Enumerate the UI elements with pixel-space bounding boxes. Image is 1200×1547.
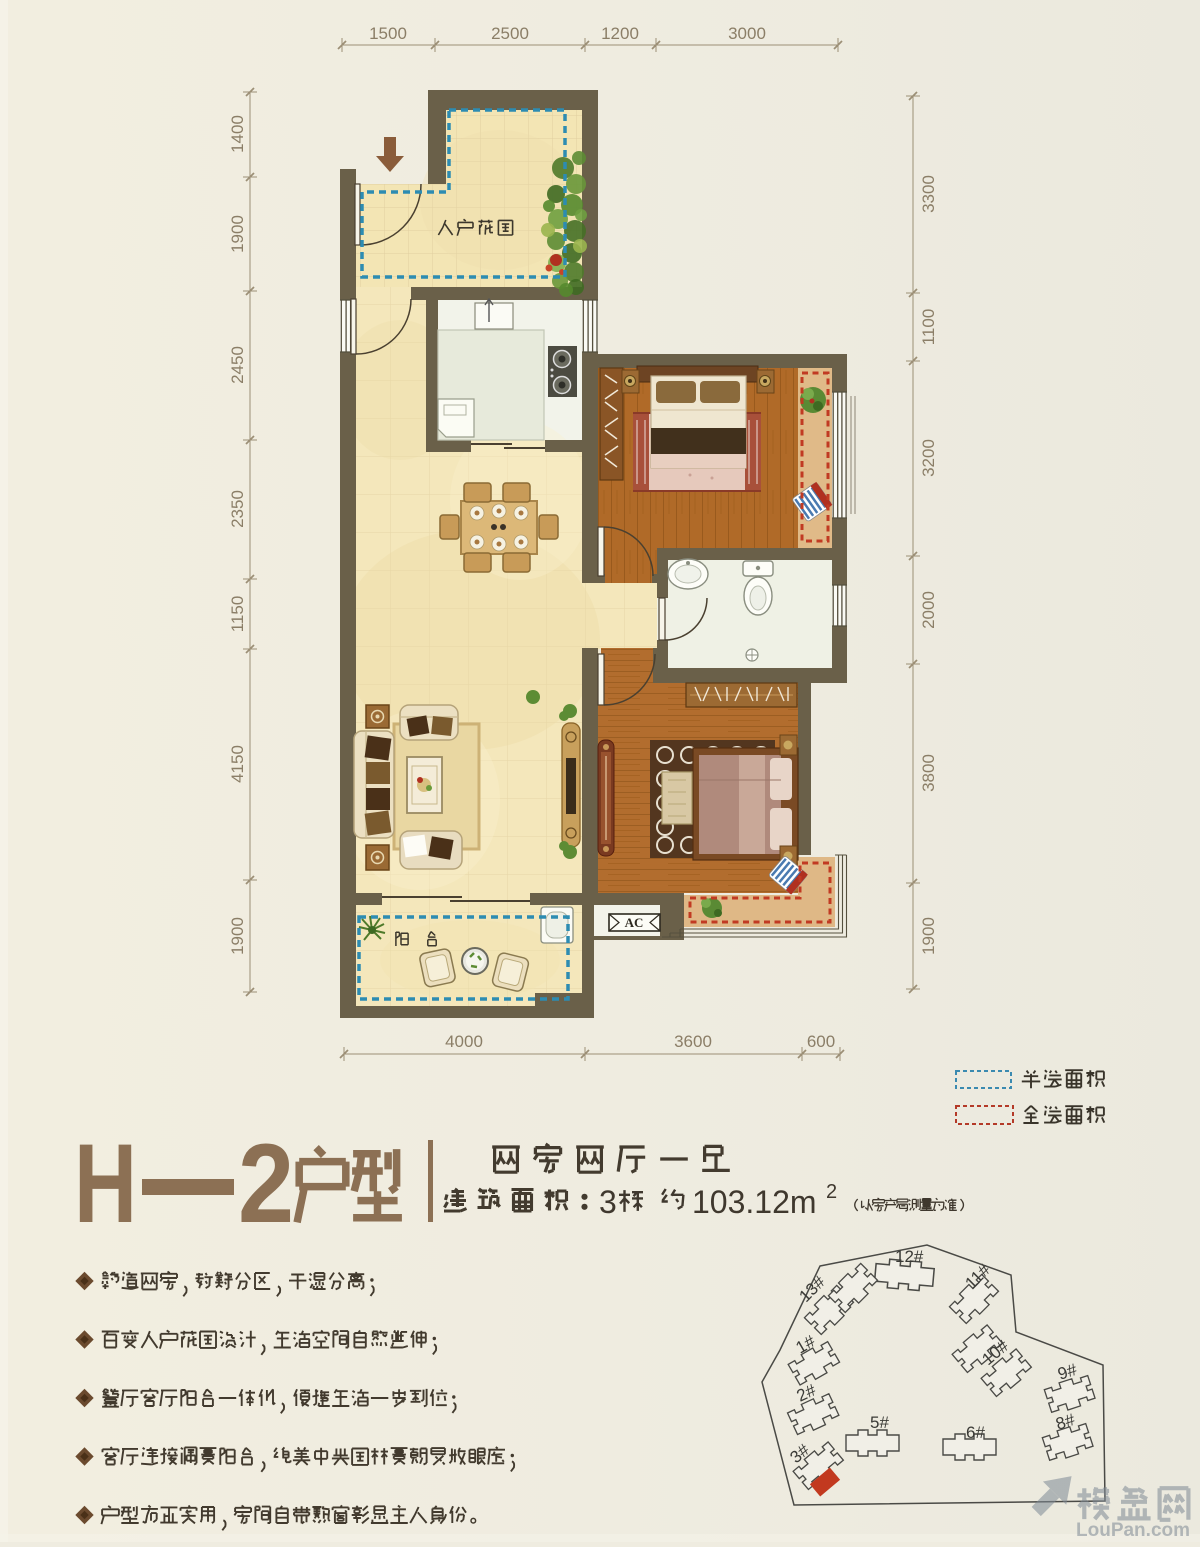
- svg-text:3600: 3600: [674, 1032, 712, 1051]
- svg-text:3: 3: [599, 1184, 617, 1220]
- svg-text:3200: 3200: [919, 439, 938, 477]
- svg-text:2350: 2350: [228, 490, 247, 528]
- svg-text:AC: AC: [625, 915, 644, 930]
- svg-text:6#: 6#: [966, 1423, 985, 1442]
- svg-text:12#: 12#: [895, 1247, 924, 1266]
- svg-text:3300: 3300: [919, 175, 938, 213]
- svg-text:1500: 1500: [369, 24, 407, 43]
- svg-text:1100: 1100: [919, 309, 938, 346]
- svg-text:2450: 2450: [228, 346, 247, 384]
- svg-text:1150: 1150: [228, 596, 247, 633]
- svg-text:3000: 3000: [728, 24, 766, 43]
- svg-text:H: H: [74, 1122, 137, 1247]
- svg-text:4150: 4150: [228, 745, 247, 783]
- svg-text:2: 2: [826, 1181, 837, 1203]
- svg-text:5#: 5#: [870, 1413, 889, 1432]
- svg-text:1200: 1200: [601, 24, 639, 43]
- svg-text:2500: 2500: [491, 24, 529, 43]
- svg-text:1900: 1900: [228, 215, 247, 253]
- svg-text:3800: 3800: [919, 754, 938, 792]
- svg-text:4000: 4000: [445, 1032, 483, 1051]
- svg-text:1400: 1400: [228, 115, 247, 153]
- svg-text:LouPan.com: LouPan.com: [1076, 1520, 1190, 1541]
- svg-text:1900: 1900: [228, 917, 247, 955]
- svg-text:2000: 2000: [919, 591, 938, 629]
- svg-text:103.12m: 103.12m: [692, 1184, 817, 1220]
- svg-text:2: 2: [238, 1121, 294, 1246]
- svg-text:600: 600: [807, 1032, 835, 1051]
- svg-text:1900: 1900: [919, 917, 938, 955]
